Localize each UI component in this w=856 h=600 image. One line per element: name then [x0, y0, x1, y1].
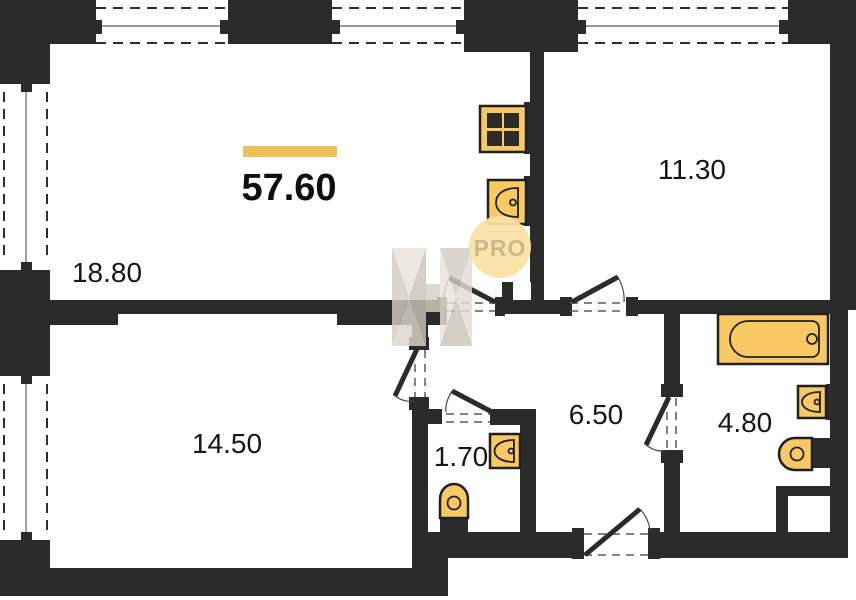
pro-badge: PRO: [469, 216, 531, 278]
room-area-living-kitchen: 18.80: [72, 257, 142, 288]
bathroom-toilet-icon: [779, 438, 830, 470]
room-area-bedroom-top-right: 11.30: [658, 154, 726, 185]
room-area-bedroom-bottom-left: 14.50: [192, 428, 262, 459]
wall-top-pier-1: [228, 0, 332, 44]
wall-wc-east: [520, 412, 536, 536]
bathroom-sink-icon: [798, 384, 832, 420]
room-area-bathroom: 4.80: [718, 407, 773, 438]
wall-bottom-left: [0, 568, 448, 596]
stove-icon: [480, 102, 532, 154]
wall-top-left-corner: [0, 0, 96, 84]
wall-bathroom-divider: [664, 314, 680, 390]
floorplan-drawing: PRO 57.60 18.80 11.30 14.50 6.50 1.70 4.…: [0, 0, 856, 600]
wall-bottom-right: [648, 532, 848, 558]
wall-top-pier-2: [464, 0, 578, 52]
wall-mid-center: [505, 300, 562, 314]
door-bedroom-bottom-left: [395, 349, 417, 401]
total-area-label: 57.60: [241, 167, 336, 209]
wall-kitchen-divider: [530, 48, 544, 282]
wall-mid-left: [0, 300, 447, 314]
wall-top-right-corner: [788, 0, 836, 44]
door-entrance: [585, 509, 650, 555]
wc-toilet-icon: [440, 484, 468, 536]
total-area-accent-bar: [243, 146, 337, 157]
wall-right: [830, 0, 856, 557]
room-area-hallway: 6.50: [569, 399, 624, 430]
floorplan-canvas: PRO 57.60 18.80 11.30 14.50 6.50 1.70 4.…: [0, 0, 856, 600]
h-logo-watermark: [392, 248, 472, 346]
door-wc: [446, 391, 494, 413]
wc-sink-icon: [490, 434, 520, 468]
door-bathroom: [646, 397, 669, 451]
fixtures: [440, 102, 832, 536]
room-area-wc: 1.70: [434, 441, 489, 472]
bathtub-icon: [718, 314, 828, 364]
door-bedroom-top-right: [572, 277, 624, 302]
pro-badge-text: PRO: [474, 235, 527, 261]
wall-mid-right: [636, 300, 830, 314]
